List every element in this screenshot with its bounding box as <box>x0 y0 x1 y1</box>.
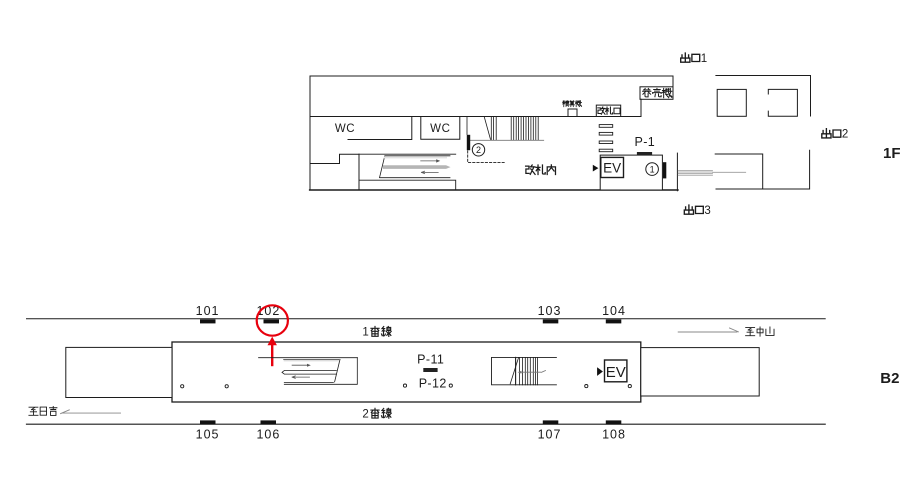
svg-text:WC: WC <box>430 123 450 135</box>
svg-text:2: 2 <box>842 129 848 141</box>
svg-text:B2: B2 <box>880 370 899 387</box>
svg-text:2: 2 <box>362 408 368 420</box>
svg-text:1: 1 <box>362 327 368 339</box>
svg-text:EV: EV <box>603 160 621 175</box>
svg-text:1: 1 <box>701 53 707 65</box>
svg-text:103: 103 <box>538 304 562 318</box>
svg-text:108: 108 <box>602 428 626 442</box>
svg-text:2: 2 <box>476 145 481 155</box>
svg-text:107: 107 <box>538 428 562 442</box>
svg-text:105: 105 <box>196 428 220 442</box>
svg-text:101: 101 <box>196 304 220 318</box>
svg-text:P-1: P-1 <box>634 135 655 149</box>
svg-text:WC: WC <box>335 123 355 135</box>
svg-text:1: 1 <box>650 164 655 174</box>
svg-text:3: 3 <box>704 205 710 217</box>
svg-text:1F: 1F <box>883 145 901 162</box>
svg-text:106: 106 <box>256 428 280 442</box>
svg-text:P-11: P-11 <box>417 353 444 367</box>
svg-text:P-12: P-12 <box>419 376 447 390</box>
svg-text:104: 104 <box>602 304 626 318</box>
svg-text:EV: EV <box>606 364 626 381</box>
